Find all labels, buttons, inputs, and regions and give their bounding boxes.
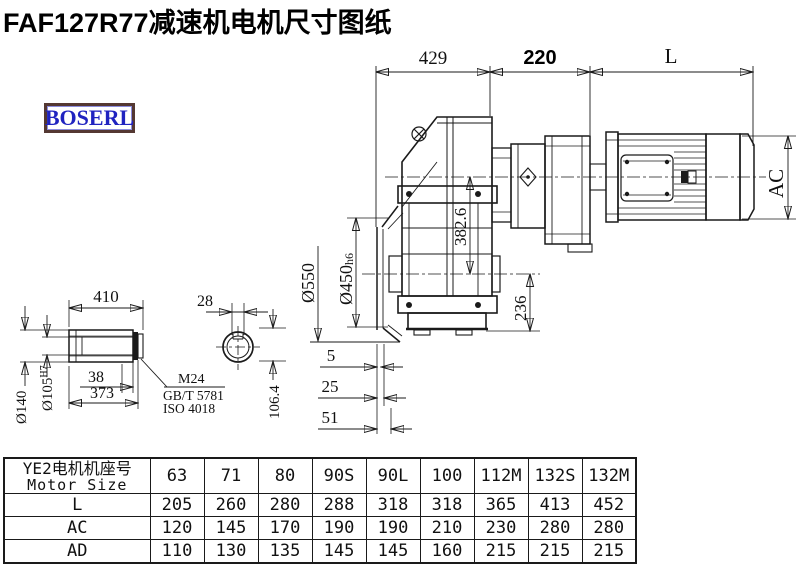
callout-m24: M24 [178,372,204,387]
col-header: 132S [528,458,582,494]
table-header-motor-size: YE2电机机座号 Motor Size [4,458,150,494]
table-cell: 280 [258,494,312,517]
col-header: 112M [474,458,528,494]
table-cell: 160 [420,540,474,564]
dim-AC: AC [764,169,788,198]
table-cell: 190 [312,517,366,540]
output-flange [310,206,403,434]
dim-382-6: 382.6 [451,208,470,246]
table-cell: 120 [150,517,204,540]
dim-51: 51 [322,408,339,427]
table-header-en: Motor Size [5,477,150,493]
row-label: L [4,494,150,517]
table-cell: 230 [474,517,528,540]
table-cell: 288 [312,494,366,517]
table-cell: 280 [528,517,582,540]
technical-drawing: 429 220 L [0,0,800,457]
table-cell: 110 [150,540,204,564]
row-label: AD [4,540,150,564]
page-title: FAF127R77减速机电机尺寸图纸 [3,1,392,40]
table-header-row: YE2电机机座号 Motor Size 63 71 80 90S 90L 100… [4,458,636,494]
table-cell: 135 [258,540,312,564]
table-cell: 145 [312,540,366,564]
dim-429: 429 [419,48,448,69]
dim-410: 410 [93,287,119,306]
page: { "title": "FAF127R77减速机电机尺寸图纸", "logo":… [0,0,800,557]
motor-adapter [492,136,606,252]
table-cell: 170 [258,517,312,540]
table-row-AC: AC 120 145 170 190 190 210 230 280 280 [4,517,636,540]
col-header: 63 [150,458,204,494]
brand-logo: BOSERL [44,103,135,133]
flange-dimensions: Ø550 Ø450h6 5 25 51 [298,218,412,429]
gearbox-housing [398,117,500,335]
dim-diameter-105H7: Ø105H7 [39,365,56,411]
dim-diameter-140: Ø140 [14,391,30,424]
dim-38: 38 [88,369,104,386]
table-row-L: L 205 260 280 288 318 318 365 413 452 [4,494,636,517]
table-cell: 365 [474,494,528,517]
dim-diameter-550: Ø550 [298,263,318,303]
callout-iso-4018: ISO 4018 [163,401,215,416]
table-cell: 215 [528,540,582,564]
table-cell: 318 [420,494,474,517]
bolt-callout: M24 GB/T 5781 ISO 4018 [141,359,225,416]
table-cell: 215 [582,540,636,564]
col-header: 100 [420,458,474,494]
col-header: 80 [258,458,312,494]
table-row-AD: AD 110 130 135 145 145 160 215 215 215 [4,540,636,564]
table-cell: 260 [204,494,258,517]
dim-106-4: 106.4 [267,385,283,419]
dim-diameter-450h6: Ø450h6 [336,253,356,305]
dim-28: 28 [197,293,213,310]
table-cell: 413 [528,494,582,517]
dim-L: L [665,44,678,68]
col-header: 71 [204,458,258,494]
col-header: 90S [312,458,366,494]
dim-5: 5 [327,346,336,365]
dim-373: 373 [90,385,114,402]
table-cell: 190 [366,517,420,540]
hollow-shaft-detail: 410 Ø140 Ø105H7 38 373 M24 [14,287,225,424]
brand-logo-text: BOSERL [45,107,134,129]
table-cell: 318 [366,494,420,517]
table-cell: 280 [582,517,636,540]
row-label: AC [4,517,150,540]
table-cell: 205 [150,494,204,517]
table-header-cn: YE2电机机座号 [5,460,150,477]
table-cell: 145 [366,540,420,564]
motor-size-table: YE2电机机座号 Motor Size 63 71 80 90S 90L 100… [3,457,637,564]
table-cell: 130 [204,540,258,564]
col-header: 132M [582,458,636,494]
dim-220: 220 [523,47,556,69]
table-cell: 210 [420,517,474,540]
table-cell: 452 [582,494,636,517]
ac-dimension: AC [742,136,796,219]
dim-25: 25 [322,377,339,396]
terminal-panel [621,155,696,201]
table-cell: 145 [204,517,258,540]
dim-236: 236 [511,296,530,322]
table-cell: 215 [474,540,528,564]
col-header: 90L [366,458,420,494]
